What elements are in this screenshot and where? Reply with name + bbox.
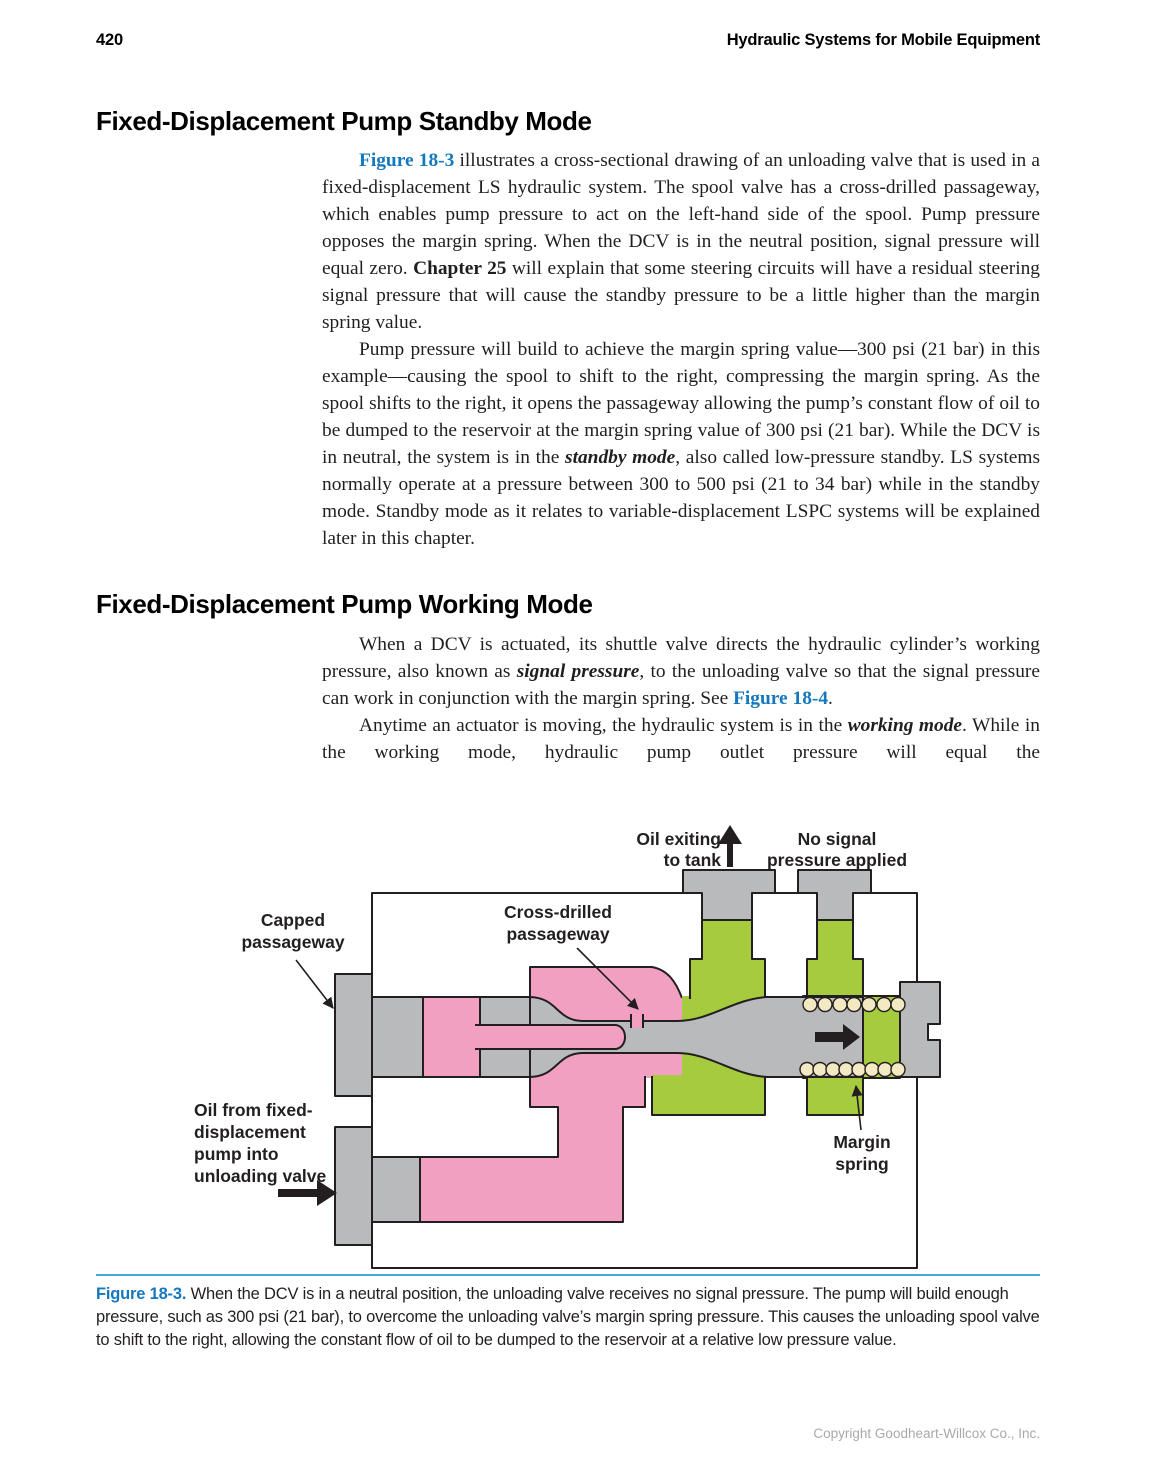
axial-drilled-passage	[475, 1025, 625, 1049]
caption-rule	[96, 1274, 1040, 1276]
label-pump-inlet: Oil from fixed-	[194, 1100, 313, 1120]
end-plug	[900, 982, 940, 1077]
figure-caption: Figure 18-3. When the DCV is in a neutra…	[96, 1283, 1040, 1352]
figure-18-3: Oil exiting to tank No signal pressure a…	[190, 812, 960, 1277]
svg-text:spring: spring	[835, 1154, 888, 1174]
capped-pointer-arrow-icon	[296, 960, 333, 1008]
textbook-page: 420 Hydraulic Systems for Mobile Equipme…	[0, 0, 1156, 1479]
heading-working-mode: Fixed-Displacement Pump Working Mode	[96, 589, 593, 620]
unloading-valve-diagram: Oil exiting to tank No signal pressure a…	[190, 812, 960, 1277]
body-text-standby: Figure 18-3 illustrates a cross-sectiona…	[322, 147, 1040, 585]
label-no-signal: No signal	[798, 829, 877, 849]
svg-text:pump into: pump into	[194, 1144, 279, 1164]
pump-inlet-cap	[335, 1127, 372, 1245]
tank-flow-arrow-icon	[718, 825, 742, 867]
paragraph: Anytime an actuator is moving, the hydra…	[322, 712, 1040, 766]
paragraph: Figure 18-3 illustrates a cross-sectiona…	[322, 147, 1040, 336]
svg-text:pressure applied: pressure applied	[767, 850, 907, 870]
capped-passageway-cap	[335, 974, 372, 1096]
label-oil-exiting: Oil exiting	[636, 829, 721, 849]
running-title: Hydraulic Systems for Mobile Equipment	[727, 31, 1040, 50]
svg-text:displacement: displacement	[194, 1122, 306, 1142]
label-cross-drilled: Cross-drilled	[504, 902, 612, 922]
copyright-notice: Copyright Goodheart-Willcox Co., Inc.	[813, 1426, 1040, 1441]
heading-standby-mode: Fixed-Displacement Pump Standby Mode	[96, 106, 592, 137]
body-text-working: When a DCV is actuated, its shuttle valv…	[322, 631, 1040, 809]
svg-text:passageway: passageway	[506, 924, 609, 944]
page-number: 420	[96, 31, 123, 50]
capped-passageway-oil	[423, 997, 480, 1077]
paragraph: When a DCV is actuated, its shuttle valv…	[322, 631, 1040, 712]
label-capped-passageway: Capped	[261, 910, 325, 930]
label-margin-spring: Margin	[833, 1132, 890, 1152]
page-header: 420 Hydraulic Systems for Mobile Equipme…	[96, 31, 1040, 50]
cross-drilled-hole	[631, 1014, 643, 1028]
svg-text:to tank: to tank	[664, 850, 722, 870]
paragraph: Pump pressure will build to achieve the …	[322, 336, 1040, 552]
inlet-port-bore	[372, 1157, 420, 1222]
spring-chamber-lower-groove	[807, 1075, 863, 1115]
tank-oil-lower-groove	[652, 1075, 765, 1115]
svg-text:unloading valve: unloading valve	[194, 1166, 327, 1186]
svg-text:passageway: passageway	[241, 932, 344, 952]
